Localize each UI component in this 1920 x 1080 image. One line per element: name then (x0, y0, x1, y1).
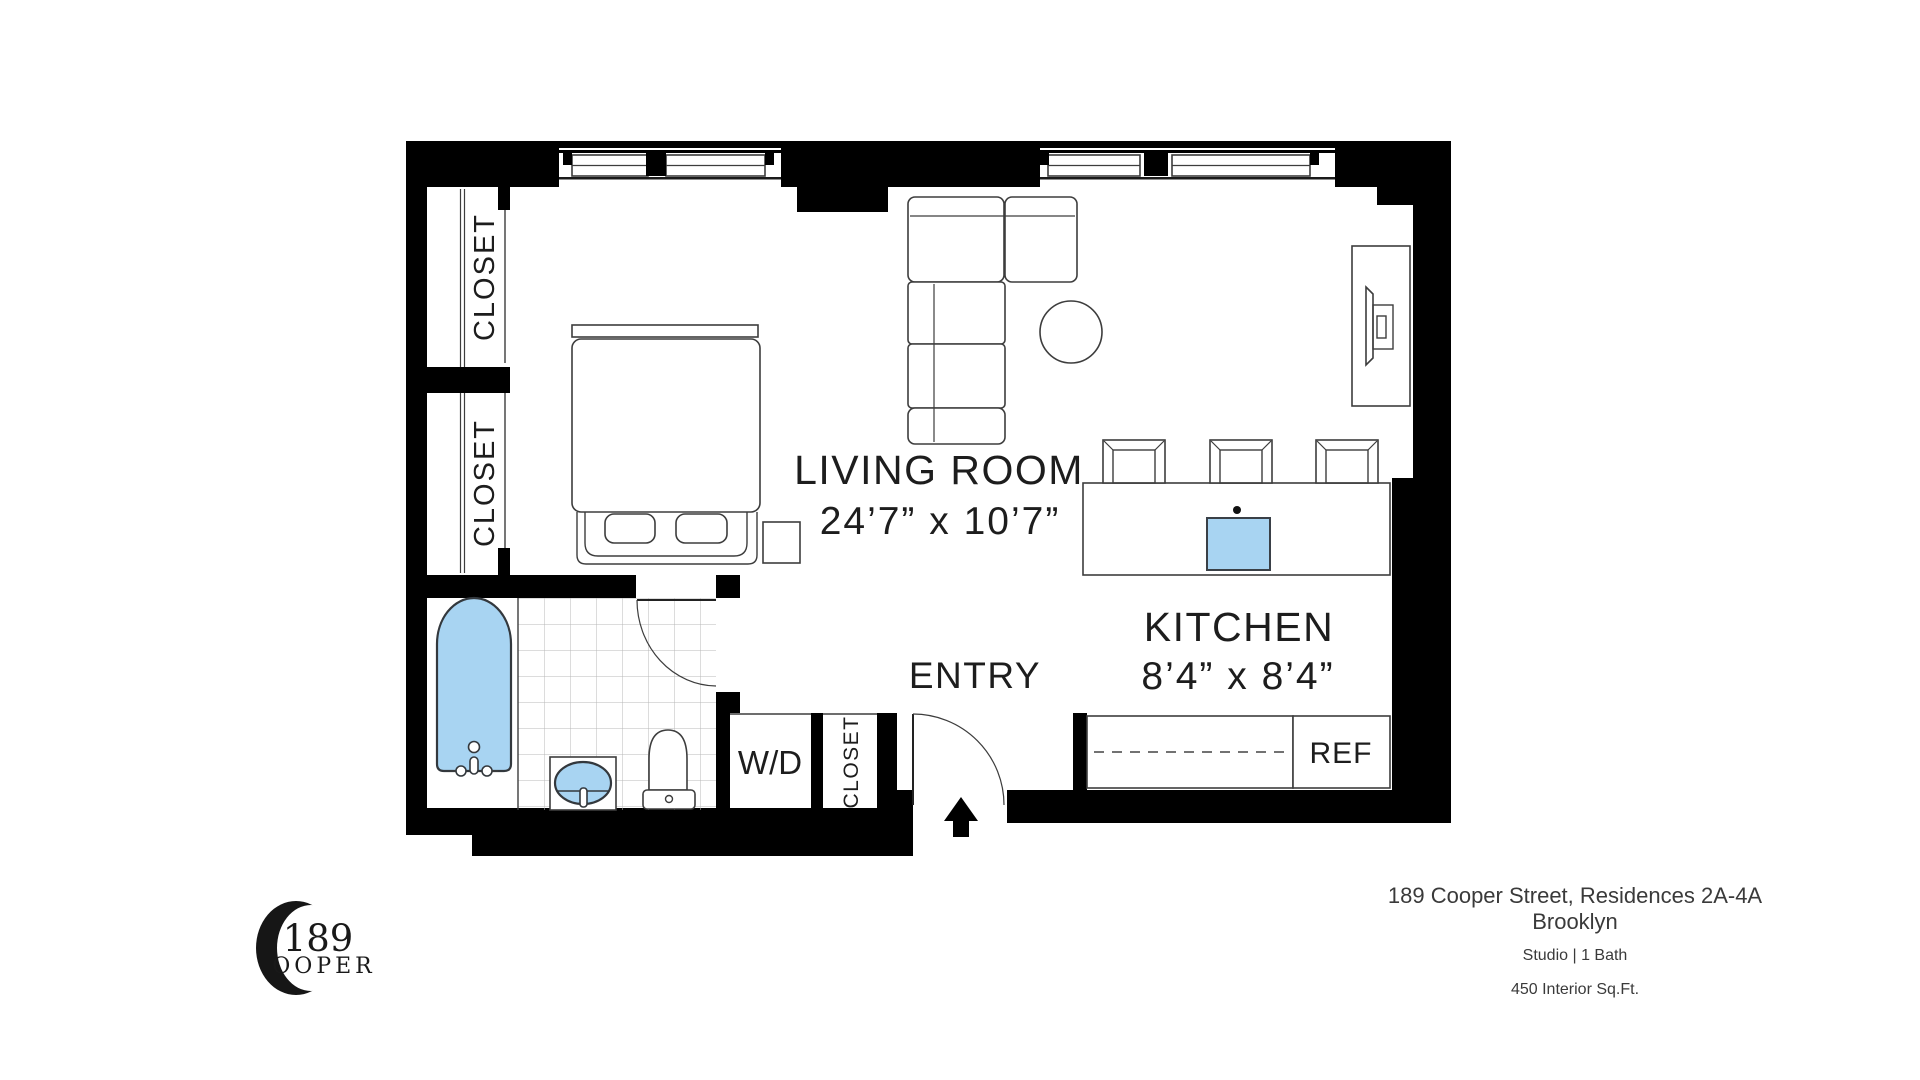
nightstand-icon (763, 522, 800, 563)
kitchen-label: KITCHEN (1144, 604, 1334, 650)
bathtub-icon (437, 598, 511, 776)
living-room-label: LIVING ROOM (794, 447, 1084, 493)
stool-icon (1210, 440, 1272, 483)
bed-icon (572, 325, 760, 564)
vanity-sink-icon (550, 757, 616, 810)
kitchen-island-icon (1083, 483, 1390, 575)
refrigerator-icon: REF (1293, 716, 1390, 788)
coffee-table-icon (1040, 301, 1102, 363)
entry-closet: CLOSET (823, 714, 877, 809)
entry-door-icon (913, 714, 1004, 805)
faucet-dot-icon (1233, 506, 1241, 514)
kitchen-counter-icon (1087, 716, 1293, 788)
bathroom (437, 598, 716, 810)
stool-icon (1103, 440, 1165, 483)
stool-icon (1316, 440, 1378, 483)
footer-text: 189 Cooper Street, Residences 2A-4A Broo… (1388, 883, 1763, 998)
refrigerator-label: REF (1310, 737, 1373, 770)
tv-console-icon (1352, 246, 1410, 406)
laundry-closet: W/D (730, 714, 811, 781)
footer-address: 189 Cooper Street, Residences 2A-4A (1388, 883, 1763, 908)
living-room-dimensions: 24’7” x 10’7” (820, 500, 1061, 543)
entry-label: ENTRY (909, 655, 1041, 696)
window-left-icon (559, 148, 781, 187)
floor-plan-canvas: CLOSET CLOSET (0, 0, 1920, 1080)
closet-entry-label: CLOSET (840, 715, 863, 808)
kitchen-dimensions: 8’4” x 8’4” (1141, 655, 1334, 698)
entry-arrow-icon (944, 797, 978, 837)
footer-city: Brooklyn (1532, 909, 1618, 934)
closet-upper: CLOSET (461, 189, 506, 367)
island-sink-icon (1207, 518, 1270, 570)
closet-upper-label: CLOSET (469, 213, 501, 341)
closet-lower-label: CLOSET (469, 419, 501, 547)
stool-icons (1103, 440, 1378, 483)
building-logo: 189 OOPER (256, 901, 376, 995)
footer-unit-type: Studio | 1 Bath (1523, 947, 1628, 964)
washer-dryer-label: W/D (738, 744, 802, 781)
window-right-icon (1040, 148, 1335, 187)
footer-area: 450 Interior Sq.Ft. (1511, 981, 1639, 998)
closet-lower: CLOSET (461, 393, 506, 573)
floor-plan-page: CLOSET CLOSET (0, 0, 1920, 1080)
logo-letters: OOPER (272, 954, 376, 979)
